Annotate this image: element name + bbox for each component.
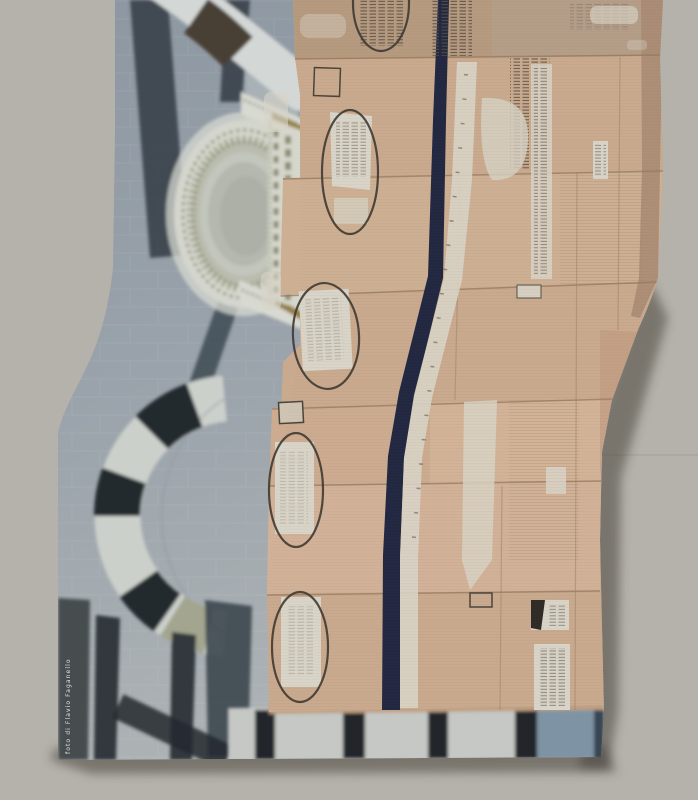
marble-stripe [58, 598, 90, 760]
poster: foto di Flavio Faganello [50, 0, 670, 770]
caption-text: foto di Flavio Faganello [65, 658, 72, 754]
marble-arc-dark-voussoir [196, 16, 238, 52]
collage-scene: foto di Flavio Faganello [0, 0, 698, 800]
artwork-photo: foto di Flavio Faganello [0, 0, 698, 800]
